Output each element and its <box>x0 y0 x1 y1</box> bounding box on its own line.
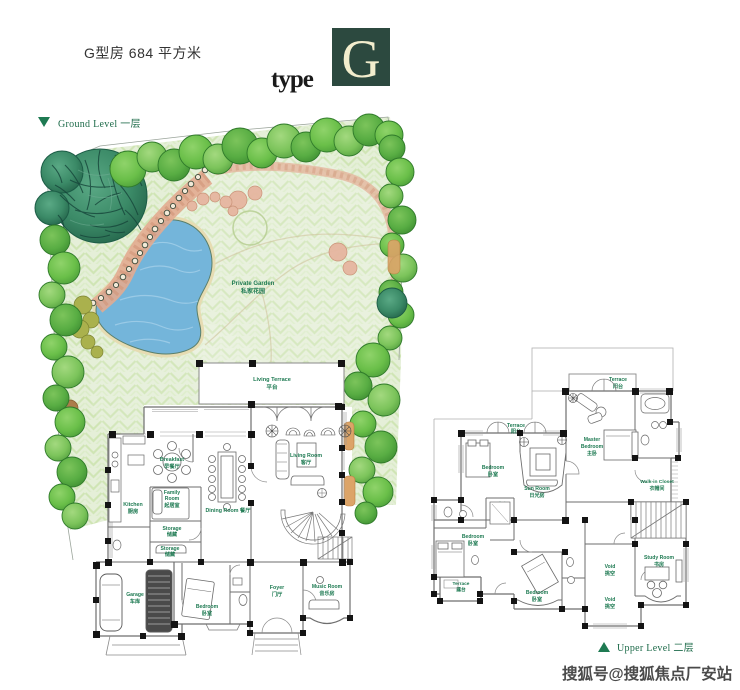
svg-text:Foyer: Foyer <box>270 585 284 591</box>
svg-text:G型房 684 平方米: G型房 684 平方米 <box>84 45 202 61</box>
svg-text:Bedroom: Bedroom <box>196 604 219 610</box>
svg-text:卧室: 卧室 <box>488 471 498 478</box>
svg-text:门厅: 门厅 <box>272 590 283 598</box>
svg-text:搜狐号@搜狐焦点厂安站: 搜狐号@搜狐焦点厂安站 <box>562 664 733 683</box>
svg-text:Sun Room: Sun Room <box>524 486 550 492</box>
svg-text:私家花园: 私家花园 <box>240 287 265 295</box>
svg-text:露台: 露台 <box>456 586 466 593</box>
svg-text:早餐厅: 早餐厅 <box>164 462 181 470</box>
svg-text:储藏: 储藏 <box>165 551 176 558</box>
svg-text:卧室: 卧室 <box>468 540 478 547</box>
svg-text:挑空: 挑空 <box>605 603 615 610</box>
svg-text:Master: Master <box>584 437 600 443</box>
svg-text:Study Room: Study Room <box>644 555 674 561</box>
svg-text:Music Room: Music Room <box>312 584 343 590</box>
svg-text:Garage: Garage <box>126 592 144 598</box>
svg-text:G: G <box>342 29 381 89</box>
svg-text:Private Garden: Private Garden <box>232 281 275 287</box>
svg-text:Bedroom: Bedroom <box>526 590 549 596</box>
svg-text:type: type <box>271 66 314 93</box>
svg-text:厨房: 厨房 <box>128 507 139 515</box>
svg-text:车库: 车库 <box>130 598 140 605</box>
svg-text:Living Room: Living Room <box>290 453 322 459</box>
svg-text:挑空: 挑空 <box>605 570 615 577</box>
svg-text:储藏: 储藏 <box>167 531 178 538</box>
svg-text:主卧: 主卧 <box>587 450 598 457</box>
svg-text:衣帽间: 衣帽间 <box>650 485 665 492</box>
svg-text:Void: Void <box>605 597 616 603</box>
svg-text:Kitchen: Kitchen <box>123 502 142 508</box>
svg-text:Bedroom: Bedroom <box>581 444 604 450</box>
svg-text:Dining Room 餐厅: Dining Room 餐厅 <box>205 506 251 514</box>
svg-text:音乐房: 音乐房 <box>319 590 334 597</box>
svg-text:卧室: 卧室 <box>202 610 212 617</box>
svg-text:Living Terrace: Living Terrace <box>253 377 291 383</box>
svg-text:平台: 平台 <box>266 383 278 391</box>
svg-text:起居室: 起居室 <box>163 502 179 509</box>
svg-text:客厅: 客厅 <box>300 458 312 466</box>
svg-text:Terrace: Terrace <box>453 581 470 587</box>
svg-text:书房: 书房 <box>654 561 664 568</box>
svg-text:Walk-in Closet: Walk-in Closet <box>640 479 674 485</box>
svg-text:阳台: 阳台 <box>613 383 623 390</box>
svg-text:Breakfast: Breakfast <box>160 457 184 463</box>
svg-text:Room: Room <box>165 496 180 502</box>
svg-text:Void: Void <box>605 564 616 570</box>
svg-text:Upper Level 二层: Upper Level 二层 <box>617 642 694 654</box>
svg-text:Ground Level 一层: Ground Level 一层 <box>58 118 141 130</box>
svg-text:日光房: 日光房 <box>529 492 544 499</box>
svg-text:Bedroom: Bedroom <box>482 465 505 471</box>
svg-text:Bedroom: Bedroom <box>462 534 485 540</box>
svg-text:卧室: 卧室 <box>532 596 542 603</box>
